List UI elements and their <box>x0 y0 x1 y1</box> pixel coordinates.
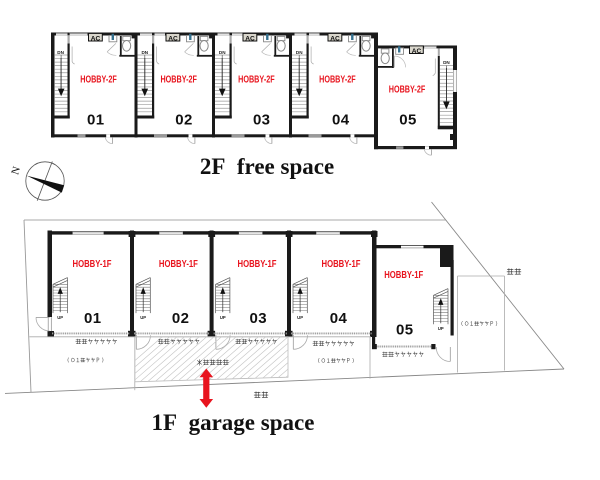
svg-text:HOBBY-1F: HOBBY-1F <box>322 259 361 270</box>
svg-text:UP: UP <box>57 315 63 320</box>
svg-text:02: 02 <box>175 111 193 128</box>
svg-text:HOBBY-2F: HOBBY-2F <box>319 75 356 86</box>
svg-text:DN: DN <box>296 50 303 55</box>
svg-text:02: 02 <box>172 310 190 327</box>
svg-text:HOBBY-1F: HOBBY-1F <box>384 270 423 281</box>
svg-text:DN: DN <box>141 50 148 55</box>
svg-text:05: 05 <box>396 321 414 338</box>
svg-text:05: 05 <box>399 112 417 129</box>
svg-text:03: 03 <box>253 111 271 128</box>
svg-text:AC: AC <box>330 35 340 42</box>
svg-text:HOBBY-1F: HOBBY-1F <box>73 259 112 270</box>
svg-text:04: 04 <box>330 310 348 327</box>
svg-text:AC: AC <box>91 35 101 42</box>
svg-text:AC: AC <box>168 35 178 42</box>
svg-text:03: 03 <box>250 310 268 327</box>
svg-text:DN: DN <box>219 50 226 55</box>
svg-text:AC: AC <box>412 48 422 55</box>
svg-text:HOBBY-2F: HOBBY-2F <box>389 84 426 95</box>
svg-text:HOBBY-2F: HOBBY-2F <box>160 75 197 86</box>
svg-text:UP: UP <box>297 315 303 320</box>
svg-text:DN: DN <box>443 60 450 65</box>
svg-text:UP: UP <box>220 315 226 320</box>
svg-text:AC: AC <box>245 35 255 42</box>
svg-text:HOBBY-2F: HOBBY-2F <box>238 75 275 86</box>
svg-text:HOBBY-1F: HOBBY-1F <box>238 259 277 270</box>
svg-text:UP: UP <box>438 326 444 331</box>
svg-text:01: 01 <box>87 111 105 128</box>
svg-text:2F free space: 2F free space <box>200 154 334 179</box>
svg-text:HOBBY-1F: HOBBY-1F <box>159 259 198 270</box>
svg-text:01: 01 <box>84 310 102 327</box>
svg-text:DN: DN <box>57 50 64 55</box>
svg-text:HOBBY-2F: HOBBY-2F <box>80 75 117 86</box>
svg-text:04: 04 <box>332 111 350 128</box>
svg-text:1F garage space: 1F garage space <box>152 410 315 435</box>
svg-text:UP: UP <box>140 315 146 320</box>
